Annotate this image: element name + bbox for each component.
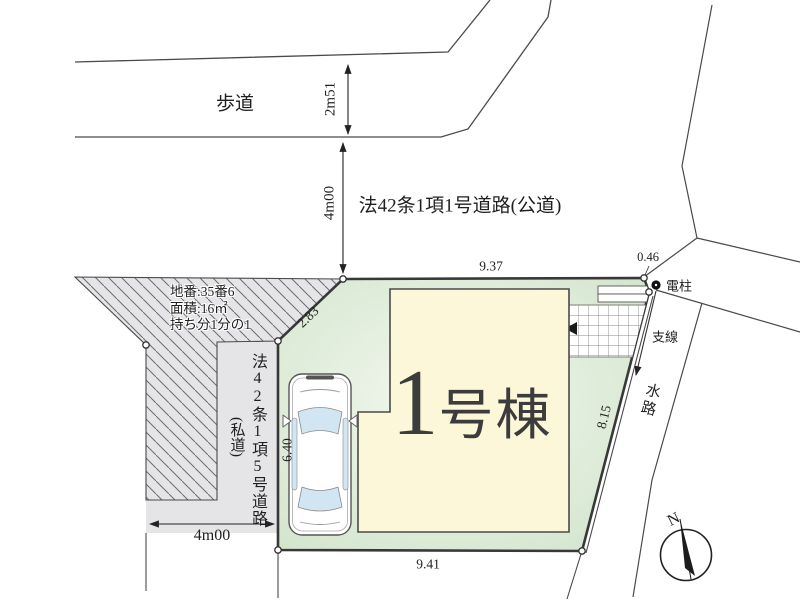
plot-corner-cut-dimension: 0.46 [637, 251, 659, 264]
east-boundary-branch [697, 238, 800, 262]
plot-right-edge-extension [567, 554, 581, 599]
private-road-width-dimension: 4m00 [194, 528, 230, 544]
car-grille [306, 376, 334, 380]
car-side-window-right [343, 418, 348, 490]
public-road-width-dimension: 4m00 [323, 186, 338, 220]
site-plan-drawing [0, 0, 800, 600]
parcel-note-line: 持ち分1分の1 [170, 317, 251, 334]
utility-pole-icon-center [655, 284, 657, 286]
public-road-label: 法42条1項1号道路(公道) [359, 197, 562, 216]
porch-step-upper [598, 286, 650, 294]
sidewalk-upper-line [75, 0, 490, 62]
site-plan: 歩道 法42条1項1号道路(公道) 地番:35番6 面積:16㎡ 持ち分1分の1… [0, 0, 800, 600]
building-label: 1号棟 [391, 349, 552, 457]
guy-wire-label: 支線 [652, 331, 678, 344]
parcel-note-line: 地番:35番6 [170, 284, 251, 301]
approach-grid-area [568, 305, 650, 357]
private-road-label: 法42条1項5号道路 [249, 353, 265, 527]
east-parcel-boundary [682, 5, 712, 238]
north-compass-icon [661, 519, 712, 581]
plot-bottom-dimension: 9.41 [416, 557, 440, 571]
sidewalk-width-dimension: 2m51 [324, 82, 339, 116]
private-road-type-label: (私道) [229, 417, 244, 457]
parcel-note: 地番:35番6 面積:16㎡ 持ち分1分の1 [170, 284, 251, 334]
sidewalk-label: 歩道 [216, 95, 254, 114]
utility-pole-label: 電柱 [666, 280, 692, 293]
car-rear-window [298, 487, 342, 511]
pole-east-boundary [656, 290, 800, 332]
parcel-note-line: 面積:16㎡ [170, 301, 251, 318]
plot-top-dimension: 9.37 [479, 259, 503, 273]
car-windshield [298, 408, 342, 435]
building-suffix: 号棟 [438, 370, 552, 450]
plot-left-dimension: 6.40 [280, 438, 294, 462]
porch-step-lower [598, 294, 650, 302]
building-number: 1 [391, 349, 438, 457]
sidewalk-lower-line [75, 0, 551, 137]
